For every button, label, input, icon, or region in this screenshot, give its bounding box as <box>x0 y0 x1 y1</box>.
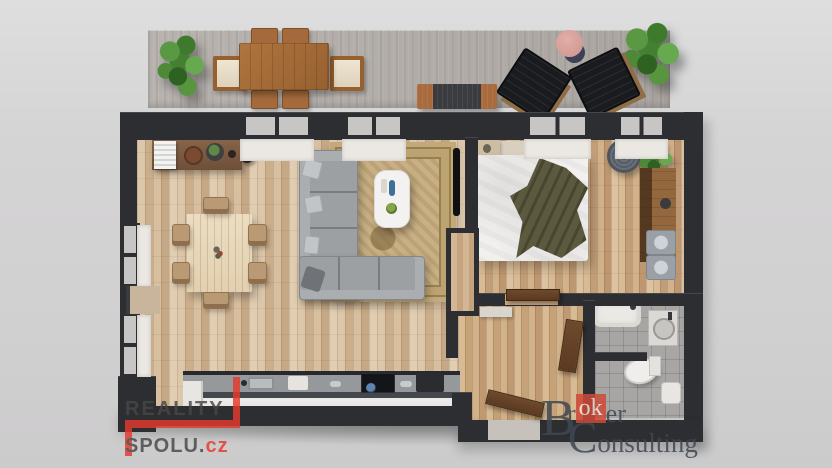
exterior-wall-top <box>120 112 703 140</box>
wall-step <box>452 392 472 426</box>
sofa-pillow <box>303 235 320 254</box>
spolu-text: SPOLU. <box>125 435 205 457</box>
table-bowl <box>386 203 397 214</box>
desk-decor <box>660 198 671 209</box>
decor-item <box>228 150 236 158</box>
table-flowers <box>211 244 225 260</box>
coffee-table <box>374 170 410 228</box>
dining-chair <box>248 262 267 284</box>
kitchen-appliance <box>416 373 444 392</box>
hall-bench <box>480 307 512 317</box>
window <box>243 113 311 139</box>
plate <box>330 381 341 387</box>
cutting-board <box>288 376 308 390</box>
window-sill <box>615 139 668 159</box>
cooking-pot <box>366 383 376 393</box>
stool <box>646 230 676 255</box>
basin-faucet <box>668 312 672 320</box>
table-tray <box>381 179 387 193</box>
bathroom-divider-wall <box>595 352 647 361</box>
broker-consulting-watermark: B roker Consulting <box>530 392 725 456</box>
outdoor-dining-table <box>239 43 329 90</box>
window-sill <box>342 139 406 161</box>
barbecue-grill <box>417 84 497 109</box>
dining-chair <box>172 262 190 284</box>
decor-plate <box>184 146 203 165</box>
partition-bedroom-hall <box>458 293 703 306</box>
radiator <box>154 141 176 169</box>
window <box>345 113 403 139</box>
dining-chair <box>203 292 229 309</box>
window-sill <box>240 139 314 161</box>
table-vase <box>389 180 395 196</box>
bedroom-door <box>506 289 560 301</box>
washbasin <box>653 318 675 340</box>
floor-plan-render: REALITY SPOLU.cz B roker Consulting <box>0 0 832 468</box>
logo-red-bar <box>125 420 240 428</box>
wall-cabinet <box>126 286 160 314</box>
dining-chair <box>172 224 190 246</box>
window-sill <box>524 139 591 159</box>
outdoor-armchair <box>330 56 364 91</box>
dining-chair <box>203 197 229 214</box>
consulting-word: Consulting <box>568 416 698 460</box>
reality-spolu-watermark: REALITY SPOLU.cz <box>110 376 260 462</box>
spolu-cz-text: cz <box>205 435 228 457</box>
outdoor-chair <box>282 90 309 109</box>
spolu-logo-text: SPOLU.cz <box>125 435 229 458</box>
plate <box>400 381 412 387</box>
window-sill <box>137 225 151 287</box>
window-sill <box>137 315 151 377</box>
dining-chair <box>248 224 267 246</box>
round-side-table <box>556 30 583 57</box>
plant-pot <box>206 143 224 161</box>
interior-doorway-frame <box>446 228 479 316</box>
toilet-tank <box>649 356 661 376</box>
window <box>618 113 665 139</box>
potted-plant-icon <box>150 28 212 106</box>
reality-logo-text: REALITY <box>125 398 225 421</box>
nightstand-decor <box>483 144 491 153</box>
stool <box>646 255 676 280</box>
wall-tv <box>453 148 460 216</box>
outdoor-chair <box>251 90 278 109</box>
window <box>527 113 588 139</box>
sofa-pillow <box>304 195 324 215</box>
